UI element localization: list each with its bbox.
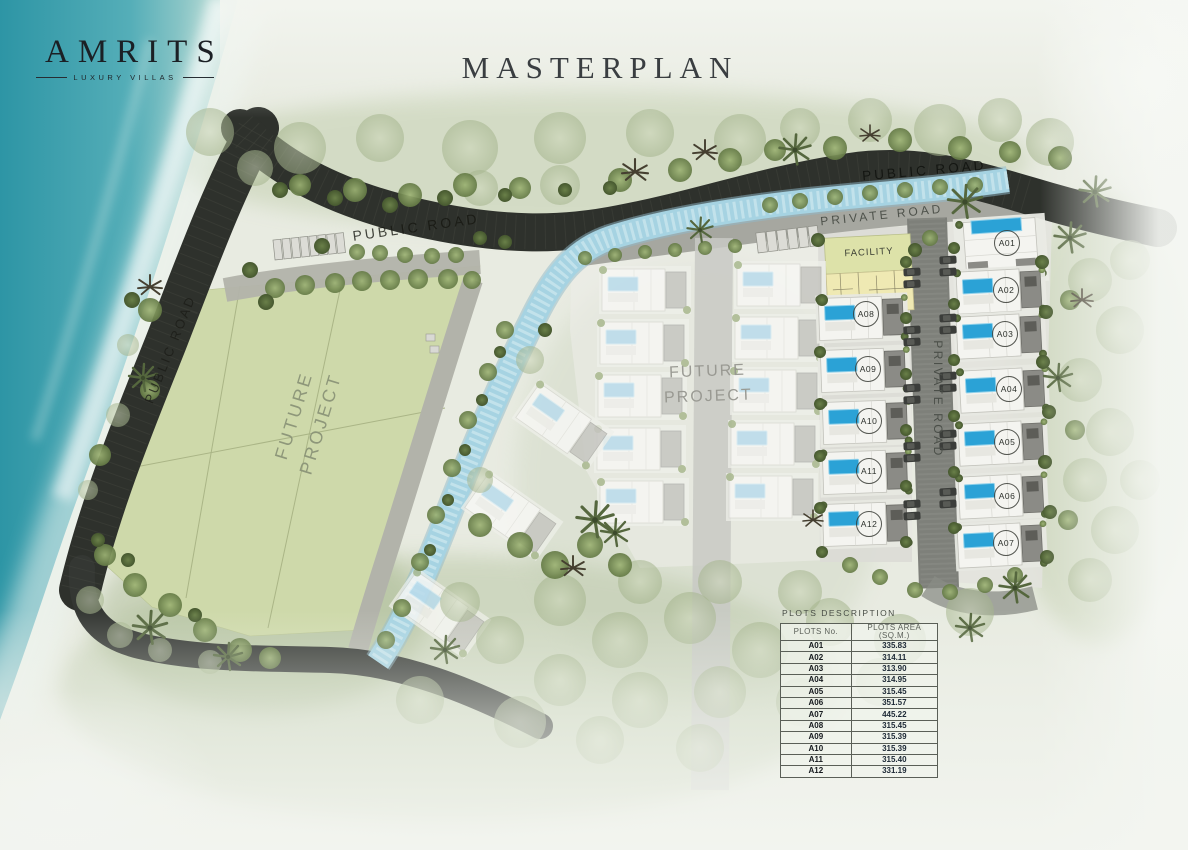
tree — [424, 248, 440, 264]
tree — [343, 178, 367, 202]
bush — [437, 190, 453, 206]
bush — [948, 354, 960, 366]
parked-car — [903, 268, 920, 277]
tree — [356, 114, 404, 162]
bush — [442, 494, 454, 506]
table-row: A11315.40 — [781, 754, 938, 765]
tree — [94, 544, 116, 566]
tree — [576, 716, 624, 764]
table-row: A04314.95 — [781, 675, 938, 686]
bush — [1035, 255, 1049, 269]
tree — [468, 513, 492, 537]
parked-car — [903, 442, 920, 451]
tree — [78, 480, 98, 500]
parking-stall — [291, 237, 301, 258]
bush — [1042, 405, 1056, 419]
bush — [314, 238, 330, 254]
tree — [872, 569, 888, 585]
plot-marker-a04: A04 — [996, 376, 1022, 402]
tree — [158, 593, 182, 617]
tree — [507, 532, 533, 558]
tree — [352, 271, 372, 291]
parked-car — [903, 396, 920, 405]
tree — [106, 403, 130, 427]
table-row: A05315.45 — [781, 686, 938, 697]
table-row: A01335.83 — [781, 641, 938, 652]
tree — [728, 239, 742, 253]
parked-car — [903, 326, 920, 335]
parking-stall — [336, 233, 346, 254]
table-row: A06351.57 — [781, 697, 938, 708]
parked-car — [939, 500, 956, 509]
bush — [476, 394, 488, 406]
bush — [498, 188, 512, 202]
plot-marker-a02: A02 — [993, 277, 1019, 303]
plot-marker-a09: A09 — [855, 356, 881, 382]
tree — [578, 251, 592, 265]
bush — [91, 533, 105, 547]
masterplan-map — [0, 0, 1188, 850]
tree — [467, 467, 493, 493]
tree — [494, 696, 546, 748]
parked-car — [903, 338, 920, 347]
bush — [188, 608, 202, 622]
bush — [948, 522, 960, 534]
bush — [948, 466, 960, 478]
brand-tagline: LUXURY VILLAS — [73, 73, 176, 82]
parked-car — [939, 326, 956, 335]
plots-table: PLOTS No. PLOTS AREA (SQ.M.) A01335.83 A… — [780, 623, 938, 778]
tree — [448, 247, 464, 263]
table-row: A10315.39 — [781, 743, 938, 754]
tree — [509, 177, 531, 199]
tree — [411, 553, 429, 571]
tree — [397, 247, 413, 263]
tree — [1086, 408, 1134, 456]
parked-car — [903, 500, 920, 509]
plot-marker-a01: A01 — [994, 230, 1020, 256]
bush — [900, 480, 912, 492]
tree — [107, 622, 133, 648]
tree — [1058, 510, 1078, 530]
tree — [1063, 458, 1107, 502]
plot-marker-a06: A06 — [994, 483, 1020, 509]
tree — [534, 574, 586, 626]
table-row: A12331.19 — [781, 766, 938, 777]
tree — [948, 136, 972, 160]
bush — [494, 346, 506, 358]
tree — [823, 136, 847, 160]
bush — [948, 298, 960, 310]
tree — [138, 298, 162, 322]
parking-row — [273, 233, 346, 260]
tree — [827, 189, 843, 205]
bush — [272, 182, 288, 198]
tree — [380, 270, 400, 290]
tree — [718, 148, 742, 172]
brand-tagline-row: LUXURY VILLAS — [36, 73, 214, 82]
parked-car — [903, 454, 920, 463]
tree — [438, 269, 458, 289]
bush — [814, 450, 826, 462]
parking-stall — [756, 232, 768, 253]
parking-stall — [787, 228, 799, 249]
parked-car — [939, 372, 956, 381]
parking-stall — [766, 231, 778, 252]
bush — [1040, 550, 1054, 564]
bush — [814, 502, 826, 514]
tree — [1091, 506, 1139, 554]
parking-stall — [300, 236, 310, 257]
plot-marker-a11: A11 — [856, 458, 882, 484]
tree — [1096, 306, 1144, 354]
tree — [676, 724, 724, 772]
plots-table-title: PLOTS DESCRIPTION — [782, 608, 938, 618]
tagline-rule-left — [36, 77, 67, 78]
parked-car — [939, 430, 956, 439]
tree — [694, 666, 746, 718]
bush — [900, 368, 912, 380]
tree — [842, 557, 858, 573]
tree — [476, 616, 524, 664]
tree — [463, 271, 481, 289]
tree — [440, 582, 480, 622]
bush — [459, 444, 471, 456]
parked-car — [903, 384, 920, 393]
tree — [516, 346, 544, 374]
tree — [942, 584, 958, 600]
tree — [1058, 358, 1102, 402]
parked-car — [939, 314, 956, 323]
parked-car — [939, 488, 956, 497]
bush — [816, 546, 828, 558]
tree — [198, 650, 222, 674]
bush — [814, 398, 826, 410]
bush — [948, 242, 960, 254]
tree — [608, 553, 632, 577]
tree — [396, 676, 444, 724]
col-plot-area: PLOTS AREA (SQ.M.) — [851, 624, 937, 641]
tree — [698, 241, 712, 255]
bush — [1039, 305, 1053, 319]
tree — [534, 112, 586, 164]
parking-stall — [797, 227, 809, 248]
tagline-rule-right — [183, 77, 214, 78]
parked-car — [903, 280, 920, 289]
plot-marker-a12: A12 — [856, 511, 882, 537]
bush — [908, 243, 922, 257]
bush — [258, 294, 274, 310]
bush — [1043, 505, 1057, 519]
tree — [888, 128, 912, 152]
tree — [764, 139, 786, 161]
tree — [1068, 558, 1112, 602]
plot-marker-a08: A08 — [853, 301, 879, 327]
bush — [327, 190, 343, 206]
tree — [668, 243, 682, 257]
tree — [922, 230, 938, 246]
tree — [393, 599, 411, 617]
tree — [496, 321, 514, 339]
bush — [538, 323, 552, 337]
table-row: A03313.90 — [781, 663, 938, 674]
tree — [1048, 146, 1072, 170]
tree — [577, 532, 603, 558]
bush — [558, 183, 572, 197]
parked-car — [939, 442, 956, 451]
tree — [932, 179, 948, 195]
bush — [900, 312, 912, 324]
tree — [349, 244, 365, 260]
tree — [479, 363, 497, 381]
parked-car — [939, 256, 956, 265]
tree — [259, 647, 281, 669]
tree — [540, 165, 580, 205]
table-row: A09315.39 — [781, 732, 938, 743]
parking-stall — [282, 238, 292, 259]
plots-description-panel: PLOTS DESCRIPTION PLOTS No. PLOTS AREA (… — [780, 608, 938, 778]
tree — [762, 197, 778, 213]
table-row: A02314.11 — [781, 652, 938, 663]
bush — [948, 410, 960, 422]
plot-marker-a10: A10 — [856, 408, 882, 434]
tree — [459, 411, 477, 429]
bush — [603, 181, 617, 195]
bush — [473, 231, 487, 245]
parked-car — [939, 384, 956, 393]
parking-stall — [777, 229, 789, 250]
tree — [612, 672, 668, 728]
tree — [668, 158, 692, 182]
tree — [698, 560, 742, 604]
plot-marker-a05: A05 — [994, 429, 1020, 455]
tree — [897, 182, 913, 198]
table-row: A07445.22 — [781, 709, 938, 720]
tree — [76, 586, 104, 614]
tree — [862, 185, 878, 201]
col-plot-no: PLOTS No. — [781, 624, 852, 641]
tree — [408, 269, 428, 289]
tree — [117, 334, 139, 356]
tree — [377, 631, 395, 649]
tree — [443, 459, 461, 477]
parked-car — [903, 512, 920, 521]
plots-table-header-row: PLOTS No. PLOTS AREA (SQ.M.) — [781, 624, 938, 641]
parking-stall — [273, 239, 283, 260]
tree — [274, 122, 326, 174]
tree — [907, 582, 923, 598]
bush — [498, 235, 512, 249]
bush — [900, 424, 912, 436]
bush — [424, 544, 436, 556]
tree — [608, 248, 622, 262]
brand-logo: AMRITS LUXURY VILLAS — [36, 34, 214, 82]
plot-marker-a07: A07 — [993, 530, 1019, 556]
tree — [453, 173, 477, 197]
tree — [999, 141, 1021, 163]
bush — [124, 292, 140, 308]
bush — [900, 536, 912, 548]
parked-car — [939, 268, 956, 277]
tree — [289, 174, 311, 196]
bush — [811, 233, 825, 247]
tree — [626, 109, 674, 157]
bush — [814, 346, 826, 358]
bush — [242, 262, 258, 278]
page-title: MASTERPLAN — [420, 50, 780, 86]
tree — [592, 612, 648, 668]
tree — [372, 245, 388, 261]
tree — [427, 506, 445, 524]
tree — [442, 120, 498, 176]
bush — [121, 553, 135, 567]
tree — [295, 275, 315, 295]
brand-name: AMRITS — [36, 34, 214, 70]
tree — [977, 577, 993, 593]
bush — [900, 256, 912, 268]
masterplan-canvas: AMRITS LUXURY VILLAS MASTERPLAN PUBLIC R… — [0, 0, 1188, 850]
tree — [237, 150, 273, 186]
tree — [1120, 460, 1160, 500]
tree — [534, 654, 586, 706]
tree — [792, 193, 808, 209]
bush — [816, 294, 828, 306]
tree — [325, 273, 345, 293]
tree — [978, 98, 1022, 142]
table-row: A08315.45 — [781, 720, 938, 731]
bush — [382, 197, 398, 213]
plot-marker-a03: A03 — [992, 321, 1018, 347]
tree — [398, 183, 422, 207]
tree — [638, 245, 652, 259]
bush — [1038, 455, 1052, 469]
tree — [1065, 420, 1085, 440]
tree — [1110, 240, 1150, 280]
tree — [89, 444, 111, 466]
tree — [123, 573, 147, 597]
tree — [186, 108, 234, 156]
